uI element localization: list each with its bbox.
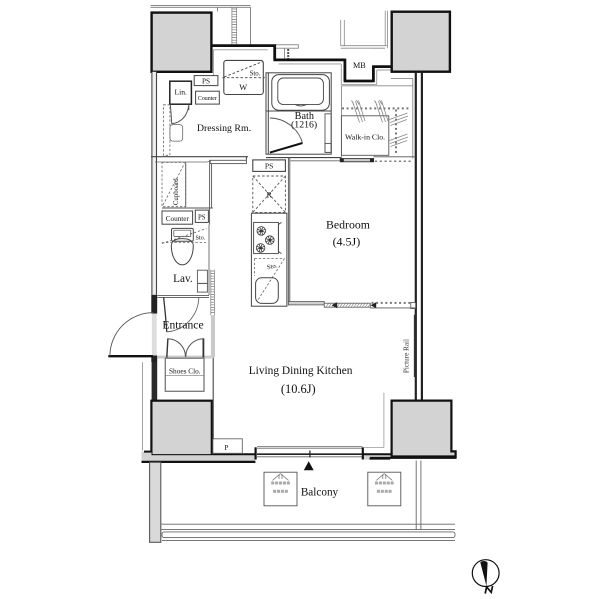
svg-text:Living Dining Kitchen: Living Dining Kitchen bbox=[249, 365, 353, 377]
svg-text:Balcony: Balcony bbox=[301, 486, 339, 498]
svg-text:PS: PS bbox=[202, 77, 210, 85]
svg-text:PS: PS bbox=[198, 214, 206, 221]
svg-text:Bedroom: Bedroom bbox=[326, 217, 370, 231]
svg-text:Counter: Counter bbox=[166, 215, 190, 223]
svg-text:PS: PS bbox=[265, 162, 273, 171]
svg-text:MB: MB bbox=[353, 61, 366, 70]
svg-text:Picture Rail: Picture Rail bbox=[403, 339, 411, 373]
svg-text:(10.6J): (10.6J) bbox=[281, 382, 316, 396]
svg-text:Cupboard: Cupboard bbox=[173, 178, 180, 205]
svg-text:Sto.: Sto. bbox=[266, 262, 278, 271]
svg-text:Sto.: Sto. bbox=[195, 235, 205, 242]
svg-text:P: P bbox=[224, 444, 228, 452]
svg-text:Dressing Rm.: Dressing Rm. bbox=[197, 123, 251, 134]
svg-text:Entrance: Entrance bbox=[162, 318, 203, 331]
svg-text:(1216): (1216) bbox=[291, 119, 317, 130]
svg-text:R: R bbox=[266, 191, 272, 200]
svg-text:Lin.: Lin. bbox=[174, 88, 187, 97]
svg-text:(4.5J): (4.5J) bbox=[333, 235, 361, 249]
svg-text:Shoes Clo.: Shoes Clo. bbox=[169, 367, 201, 376]
svg-text:Sto.: Sto. bbox=[250, 71, 261, 78]
svg-text:W: W bbox=[239, 83, 247, 92]
svg-text:Lav.: Lav. bbox=[173, 273, 193, 285]
svg-text:Counter: Counter bbox=[198, 96, 217, 102]
svg-text:Walk-in Clo.: Walk-in Clo. bbox=[345, 133, 385, 142]
